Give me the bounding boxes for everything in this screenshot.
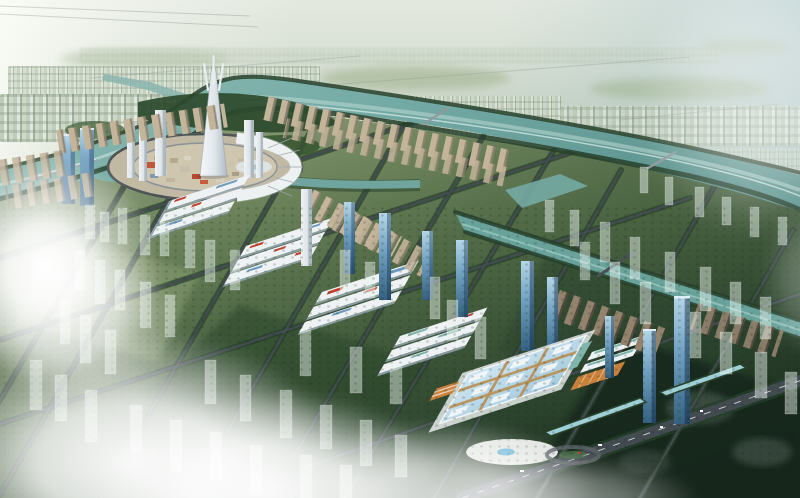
aerial-city-rendering xyxy=(0,0,800,498)
power-lines xyxy=(0,6,258,27)
